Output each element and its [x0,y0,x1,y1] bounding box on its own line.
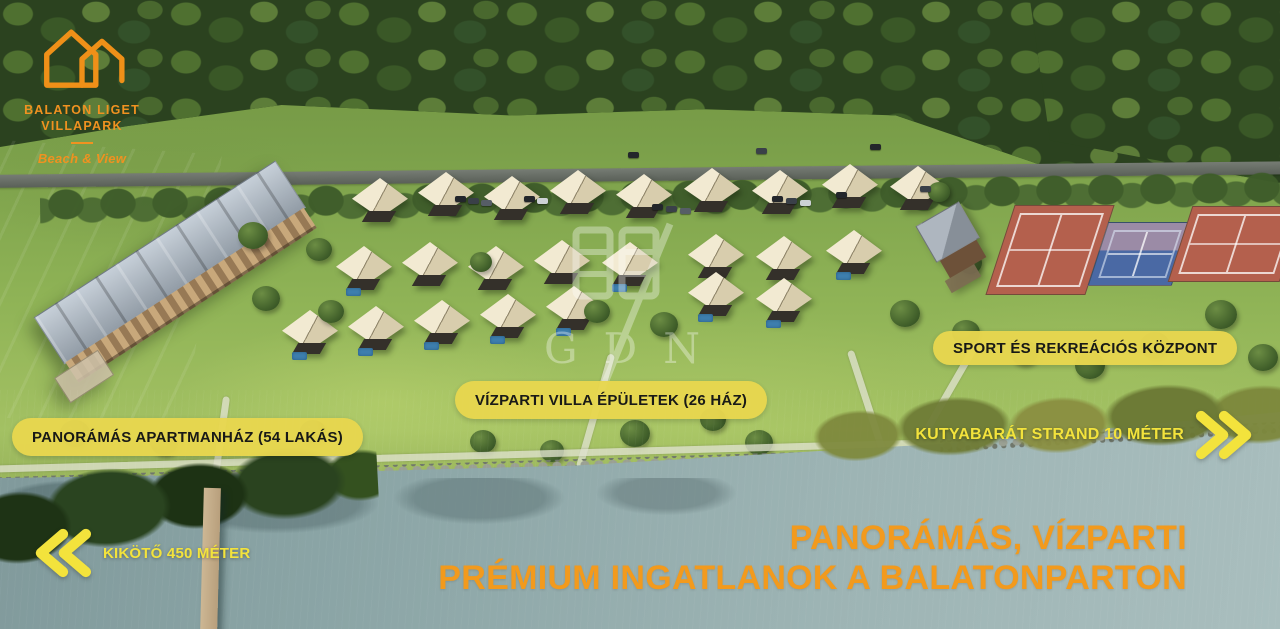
swimming-pool [358,348,373,356]
villa-house [348,306,404,352]
swimming-pool [836,272,851,280]
tree [238,222,268,249]
swimming-pool [612,284,627,292]
villa-house [684,168,740,214]
tree [650,312,678,337]
parked-car [870,144,881,150]
brand-logo: BALATON LIGET VILLAPARK Beach & View [16,20,148,166]
parked-car [652,204,663,210]
label-waterfront-villas: VÍZPARTI VILLA ÉPÜLETEK (26 HÁZ) [455,381,767,419]
parked-car [800,200,811,206]
villa-house [826,230,882,276]
tree [252,286,280,311]
harbor-direction: KIKÖTŐ 450 MÉTER [33,522,250,584]
tree [1205,300,1237,329]
villa-glass-wall [544,273,578,284]
villa-house [480,294,536,340]
court-lines [996,213,1104,287]
parked-car [481,200,492,206]
parked-car [786,198,797,204]
parked-car [920,186,931,192]
tree [1248,344,1278,371]
villa-house [756,236,812,282]
parked-car [468,198,479,204]
parked-car [772,196,783,202]
parked-car [628,152,639,158]
parked-car [455,196,466,202]
swimming-pool [766,320,781,328]
swimming-pool [698,314,713,322]
harbor-direction-label: KIKÖTŐ 450 MÉTER [103,545,250,562]
brand-name-line1: BALATON LIGET [16,102,148,118]
beach-direction-label: KUTYABARÁT STRAND 10 MÉTER [915,426,1184,444]
villa-house [616,174,672,220]
villa-house [402,242,458,288]
swimming-pool [424,342,439,350]
tree [470,430,496,453]
swimming-pool [346,288,361,296]
villa-house [602,242,658,288]
villa-house [752,170,808,216]
swimming-pool [292,352,307,360]
villa-glass-wall [762,203,796,214]
villa-glass-wall [560,203,594,214]
villa-glass-wall [362,211,396,222]
tree [928,182,950,202]
brand-tagline: Beach & View [16,151,148,166]
villa-house [418,172,474,218]
logo-divider [71,142,93,144]
villa-house [550,170,606,216]
tree [306,238,332,261]
villa-glass-wall [412,275,446,286]
parked-car [680,208,691,214]
villa-glass-wall [900,199,934,210]
villa-house [336,246,392,292]
marketing-headline: PANORÁMÁS, VÍZPARTI PRÉMIUM INGATLANOK A… [438,518,1187,598]
villa-house [756,278,812,324]
double-chevron-left-icon [33,522,93,584]
tree [470,252,492,272]
parked-car [524,196,535,202]
label-sport-center: SPORT ÉS REKREÁCIÓS KÖZPONT [933,331,1237,365]
villapark-logo-icon [36,20,128,92]
headline-line2: PRÉMIUM INGATLANOK A BALATONPARTON [438,558,1187,598]
villa-house [822,164,878,210]
villa-house [352,178,408,224]
villa-glass-wall [694,201,728,212]
parked-car [666,206,677,212]
villa-house [414,300,470,346]
tree [318,300,344,323]
parked-car [756,148,767,154]
parked-car [836,192,847,198]
villa-glass-wall [478,279,512,290]
tree [620,420,650,447]
villa-glass-wall [494,209,528,220]
aerial-render: GDN BALATON LIGET VILLAPARK Beach & View… [0,0,1280,629]
tree [584,300,610,323]
court-lines [1098,230,1182,278]
brand-name-line2: VILLAPARK [16,118,148,134]
parked-car [537,198,548,204]
villa-glass-wall [832,197,866,208]
headline-line1: PANORÁMÁS, VÍZPARTI [438,518,1187,558]
swimming-pool [556,328,571,336]
beach-direction: KUTYABARÁT STRAND 10 MÉTER [915,404,1254,466]
label-apartment-house: PANORÁMÁS APARTMANHÁZ (54 LAKÁS) [12,418,363,456]
court-lines [1178,214,1280,274]
villa-glass-wall [428,205,462,216]
swimming-pool [490,336,505,344]
villa-house [688,272,744,318]
double-chevron-right-icon [1194,404,1254,466]
villa-house [534,240,590,286]
tree [890,300,920,327]
